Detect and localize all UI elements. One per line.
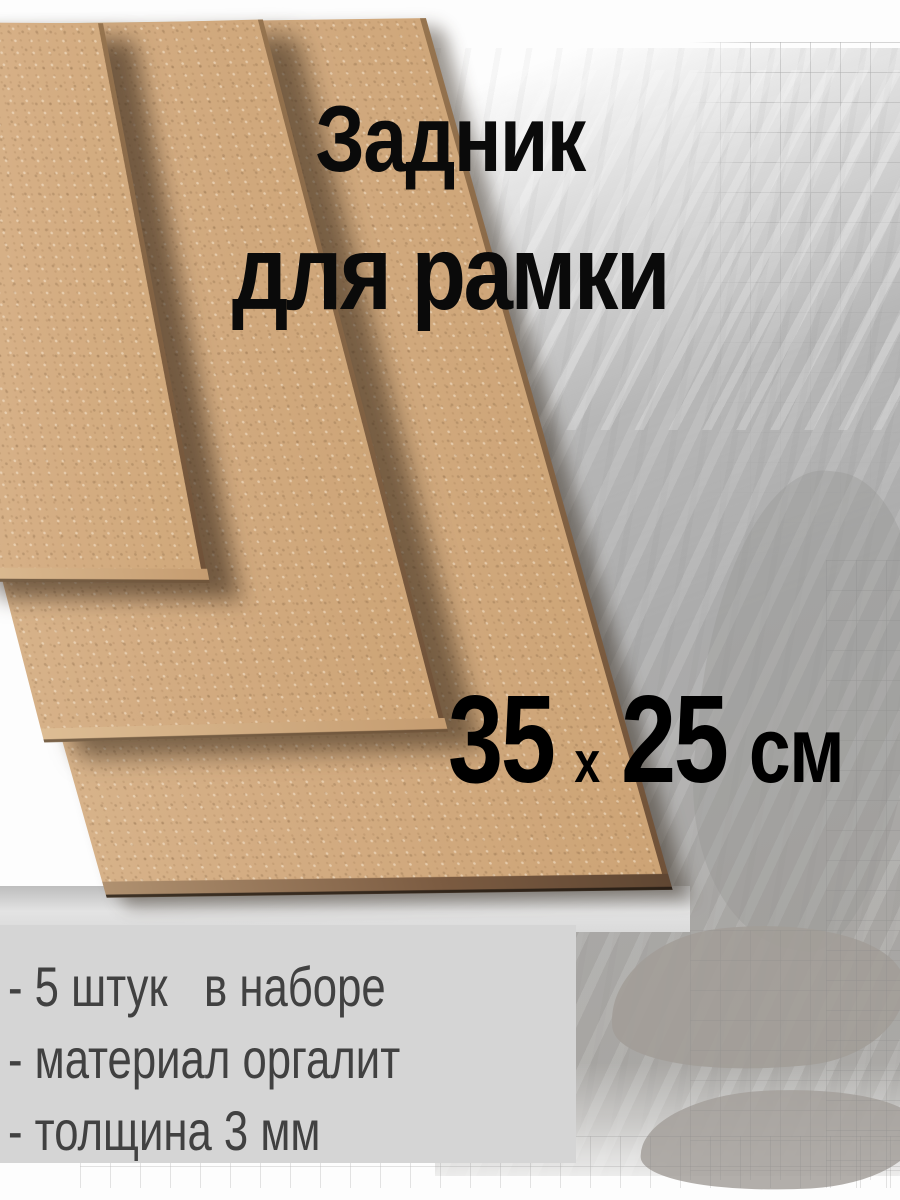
feature-quantity: - 5 штук в наборе [8,951,451,1023]
size-separator: x [574,734,600,792]
product-title-line2: для рамки [72,220,828,326]
size-label: 35 x 25 см [448,678,843,802]
size-height-value: 25 [621,678,727,802]
feature-material: - материал оргалит [8,1023,451,1095]
product-image: Задник для рамки 35 x 25 см - 5 штук в н… [0,0,900,1200]
product-title-line1: Задник [72,92,828,186]
feature-thickness: - толщина 3 мм [8,1095,451,1167]
size-unit: см [749,703,843,797]
features-panel: - 5 штук в наборе - материал оргалит - т… [0,925,576,1163]
size-width-value: 35 [448,678,554,802]
